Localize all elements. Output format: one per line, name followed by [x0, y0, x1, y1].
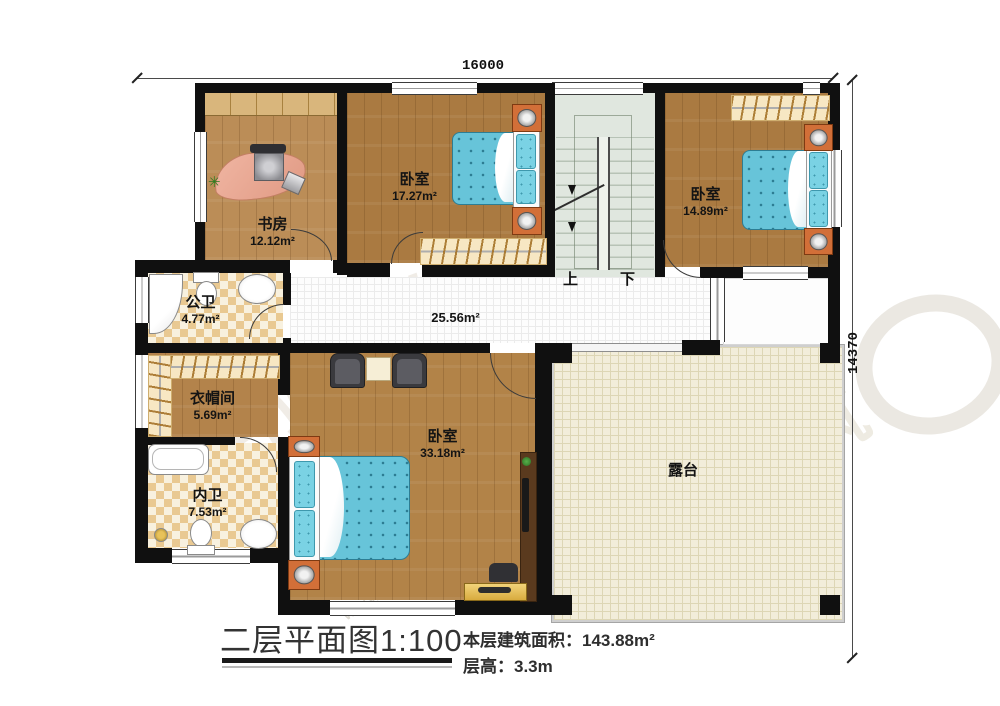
room-name: 公卫 — [158, 294, 243, 312]
bedroom-b-label: 卧室 14.89m² — [663, 186, 748, 218]
bedroom-b-nightstand — [804, 124, 833, 151]
window — [743, 266, 808, 280]
corridor-floor — [290, 277, 710, 343]
bedroom-b-wardrobe — [731, 95, 830, 121]
bedroom-b-pillow — [809, 152, 828, 189]
terrace-railing — [572, 343, 682, 352]
title-underline — [222, 658, 452, 663]
study-chair-seat — [254, 153, 284, 181]
bedroom-a-wardrobe — [420, 238, 547, 265]
window — [330, 601, 455, 616]
cloakroom-label: 衣帽间 5.69m² — [170, 390, 255, 422]
wall — [535, 343, 552, 353]
room-name: 内卫 — [165, 487, 250, 505]
terrace-label: 露台 — [653, 462, 713, 480]
private-bath-label: 内卫 7.53m² — [165, 487, 250, 519]
room-area: 33.18m² — [400, 446, 485, 460]
wall — [477, 83, 552, 93]
master-pillow — [294, 510, 315, 557]
wall — [135, 343, 290, 353]
master-bedroom-label: 卧室 33.18m² — [400, 428, 485, 460]
wall — [135, 428, 148, 563]
room-name: 卧室 — [400, 428, 485, 446]
room-area: 25.56m² — [413, 310, 498, 326]
plan-title: 二层平面图1:100 — [220, 615, 463, 660]
wall — [278, 600, 330, 615]
room-name: 书房 — [230, 216, 315, 234]
study-cabinet — [205, 93, 337, 116]
window — [710, 278, 725, 342]
title-underline-shadow — [222, 666, 452, 668]
wall — [682, 340, 720, 355]
room-name: 卧室 — [372, 171, 457, 189]
master-side-table — [366, 357, 391, 381]
watermark-logo-ring — [840, 277, 1000, 451]
cloakroom-rack — [170, 355, 280, 379]
room-area: 4.77m² — [158, 312, 243, 326]
terrace-column — [552, 343, 572, 363]
wall — [333, 260, 347, 273]
window — [194, 132, 207, 222]
void-area — [723, 278, 830, 345]
room-name: 露台 — [653, 462, 713, 480]
wall — [808, 267, 828, 278]
floor-plan: 柏竣建筑 柏竣建筑 www.baijunjz.com www.baijunjz.… — [0, 0, 1000, 706]
bedroom-b-bed-sheet — [788, 151, 807, 227]
room-name: 卧室 — [663, 186, 748, 204]
room-area: 17.27m² — [372, 189, 457, 203]
master-desk-chair — [489, 563, 518, 582]
wall — [195, 83, 392, 93]
corridor-label: 25.56m² — [413, 310, 498, 326]
wall — [455, 600, 552, 615]
bedroom-a-pillow — [516, 170, 536, 204]
bedroom-a-label: 卧室 17.27m² — [372, 171, 457, 203]
study-label: 书房 12.12m² — [230, 216, 315, 248]
terrace-column — [552, 595, 572, 615]
bedroom-a-bed-sheet — [495, 133, 514, 202]
master-pillow — [294, 461, 315, 508]
window — [392, 82, 477, 95]
room-name: 衣帽间 — [170, 390, 255, 408]
master-armchair — [330, 353, 365, 388]
master-tv — [522, 478, 529, 532]
bathtub-inner — [152, 448, 204, 470]
top-dimension-line — [137, 78, 833, 79]
wall — [347, 263, 390, 277]
bedroom-a-nightstand — [512, 207, 542, 235]
bedroom-b-pillow — [809, 190, 828, 227]
stair-up-label: 上 — [563, 268, 578, 289]
window — [552, 82, 643, 95]
bedroom-b-door-arc — [663, 240, 701, 278]
wall — [195, 83, 205, 132]
stair-direction-arrow — [568, 185, 576, 195]
wall — [135, 548, 172, 563]
stair-down-label: 下 — [620, 268, 635, 289]
wall — [250, 548, 278, 563]
master-armchair — [392, 353, 427, 388]
terrace-column — [820, 595, 840, 615]
room-area: 12.12m² — [230, 234, 315, 248]
window — [803, 82, 820, 95]
bathroom-sink — [240, 519, 277, 549]
wall — [422, 263, 545, 277]
wall — [337, 83, 347, 275]
wall — [283, 273, 291, 305]
bedroom-a-nightstand — [512, 104, 542, 132]
bedroom-b-nightstand — [804, 228, 833, 255]
master-dresser-items — [478, 587, 511, 593]
floor-drain — [154, 528, 168, 542]
study-plant: ✳ — [208, 175, 224, 191]
cloakroom-rack — [148, 355, 172, 437]
room-area: 14.89m² — [663, 204, 748, 218]
room-area: 7.53m² — [165, 505, 250, 519]
window — [135, 277, 149, 323]
stair-rail — [597, 137, 610, 270]
floor-area-text: 本层建筑面积：143.88m² — [463, 626, 655, 651]
wall — [290, 343, 490, 353]
bathroom-sink — [238, 274, 276, 304]
floor-height-text: 层高：3.3m — [463, 652, 553, 677]
public-bath-label: 公卫 4.77m² — [158, 294, 243, 326]
study-chair-back — [250, 144, 286, 153]
master-nightstand — [288, 560, 320, 590]
window — [135, 355, 149, 428]
master-tv-plant — [522, 457, 531, 466]
stair-direction-arrow — [568, 222, 576, 232]
wall — [535, 353, 552, 615]
wall — [643, 83, 803, 93]
master-nightstand — [288, 436, 320, 457]
bedroom-a-pillow — [516, 134, 536, 169]
wall — [700, 267, 743, 278]
terrace-column — [820, 343, 840, 363]
toilet-bowl — [190, 519, 212, 547]
top-dimension-value: 16000 — [462, 58, 504, 74]
terrace-floor — [552, 345, 844, 622]
room-area: 5.69m² — [170, 408, 255, 422]
right-dimension-value: 14370 — [846, 331, 862, 375]
toilet-tank — [187, 545, 215, 555]
